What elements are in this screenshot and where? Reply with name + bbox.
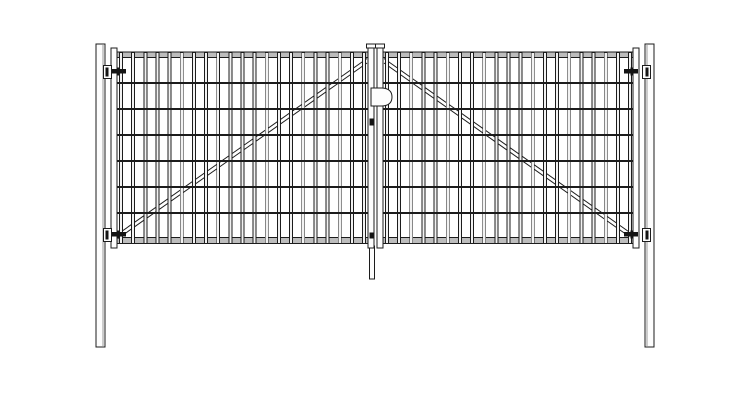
mesh-vertical-wire (277, 53, 280, 244)
mesh-vertical-wire (471, 53, 474, 244)
mesh-vertical-wire (290, 53, 293, 244)
right-post-body (645, 44, 654, 347)
mesh-horizontal-wire (383, 186, 633, 188)
mesh-horizontal-wire (117, 82, 368, 84)
mesh-vertical-wire (483, 53, 486, 244)
left-leaf-mesh-vertical-wires (120, 53, 366, 244)
hinge-top-left-bolt-tab (117, 68, 120, 76)
hinge-top-left-bracket-pin (106, 68, 109, 77)
mesh-horizontal-wire (383, 160, 633, 162)
gate-drawing-svg (0, 0, 750, 400)
left-post (96, 44, 105, 347)
hinge-top-right-bolt-tab (631, 68, 634, 76)
mesh-vertical-wire (398, 53, 401, 244)
latch (371, 88, 392, 106)
latch-bolt-knob-1 (370, 119, 374, 126)
mesh-vertical-wire (314, 53, 317, 244)
mesh-horizontal-wire (117, 186, 368, 188)
mesh-vertical-wire (616, 53, 619, 244)
drop-rod (370, 246, 375, 279)
mesh-vertical-wire (410, 53, 413, 244)
mesh-horizontal-wire (117, 160, 368, 162)
mesh-horizontal-wire (117, 212, 368, 214)
right-leaf-center-stile (377, 45, 383, 248)
mesh-vertical-wire (241, 53, 244, 244)
hinge-top-right-bracket-pin (646, 68, 649, 77)
mesh-vertical-wire (434, 53, 437, 244)
mesh-vertical-wire (386, 53, 389, 244)
left-leaf-center-stile (368, 45, 374, 248)
mesh-vertical-wire (132, 53, 135, 244)
mesh-vertical-wire (229, 53, 232, 244)
mesh-vertical-wire (458, 53, 461, 244)
mesh-vertical-wire (507, 53, 510, 244)
mesh-vertical-wire (422, 53, 425, 244)
hinge-bottom-right-bolt-tab (631, 231, 634, 239)
mesh-vertical-wire (446, 53, 449, 244)
mesh-vertical-wire (568, 53, 571, 244)
mesh-vertical-wire (338, 53, 341, 244)
mesh-vertical-wire (350, 53, 353, 244)
mesh-horizontal-wire (383, 212, 633, 214)
mesh-vertical-wire (556, 53, 559, 244)
mesh-vertical-wire (120, 53, 123, 244)
left-post-body (96, 44, 105, 347)
mesh-vertical-wire (495, 53, 498, 244)
mesh-vertical-wire (253, 53, 256, 244)
hinge-bottom-left-bolt-tab (117, 231, 120, 239)
mesh-vertical-wire (144, 53, 147, 244)
mesh-vertical-wire (265, 53, 268, 244)
mesh-vertical-wire (168, 53, 171, 244)
mesh-vertical-wire (192, 53, 195, 244)
right-leaf-center-stile-cap (376, 44, 385, 48)
right-leaf-mesh-vertical-wires (386, 53, 632, 244)
left-leaf (117, 52, 368, 244)
mesh-vertical-wire (217, 53, 220, 244)
mesh-vertical-wire (519, 53, 522, 244)
mesh-vertical-wire (302, 53, 305, 244)
mesh-vertical-wire (592, 53, 595, 244)
mesh-vertical-wire (531, 53, 534, 244)
right-leaf (383, 52, 633, 244)
latch-housing (371, 88, 392, 106)
mesh-vertical-wire (156, 53, 159, 244)
mesh-vertical-wire (180, 53, 183, 244)
right-post (645, 44, 654, 347)
hinge-bottom-right-bracket-pin (646, 231, 649, 240)
mesh-horizontal-wire (383, 82, 633, 84)
left-leaf-center-stile-cap (367, 44, 376, 48)
gate-technical-drawing (0, 0, 750, 400)
latch-bolt-knob-2 (370, 233, 374, 239)
mesh-vertical-wire (543, 53, 546, 244)
mesh-vertical-wire (363, 53, 366, 244)
mesh-vertical-wire (604, 53, 607, 244)
mesh-horizontal-wire (117, 108, 368, 110)
mesh-horizontal-wire (383, 134, 633, 136)
right-leaf-outer-stile (633, 48, 639, 248)
mesh-vertical-wire (629, 53, 632, 244)
mesh-horizontal-wire (383, 108, 633, 110)
mesh-vertical-wire (580, 53, 583, 244)
drop-rod-body (370, 246, 375, 279)
mesh-vertical-wire (205, 53, 208, 244)
hinge-bottom-left-bracket-pin (106, 231, 109, 240)
mesh-vertical-wire (326, 53, 329, 244)
mesh-horizontal-wire (117, 134, 368, 136)
